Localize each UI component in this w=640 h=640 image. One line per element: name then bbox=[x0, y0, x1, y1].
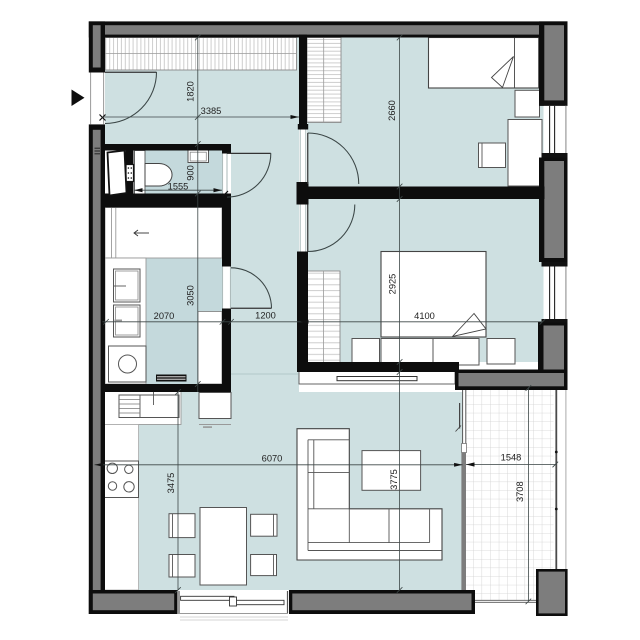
svg-text:3475: 3475 bbox=[166, 473, 176, 494]
svg-text:3385: 3385 bbox=[201, 106, 222, 116]
svg-text:1548: 1548 bbox=[501, 452, 522, 462]
svg-text:1555: 1555 bbox=[168, 182, 189, 192]
svg-text:6070: 6070 bbox=[262, 453, 283, 463]
svg-text:1200: 1200 bbox=[255, 310, 276, 320]
svg-text:3775: 3775 bbox=[389, 469, 399, 490]
svg-text:900: 900 bbox=[186, 165, 196, 181]
svg-text:2070: 2070 bbox=[154, 311, 175, 321]
svg-text:2925: 2925 bbox=[388, 274, 398, 295]
svg-text:2660: 2660 bbox=[387, 100, 397, 121]
svg-text:3050: 3050 bbox=[186, 285, 196, 306]
svg-text:3708: 3708 bbox=[515, 481, 525, 502]
svg-text:1820: 1820 bbox=[185, 81, 195, 102]
svg-text:4100: 4100 bbox=[414, 311, 435, 321]
